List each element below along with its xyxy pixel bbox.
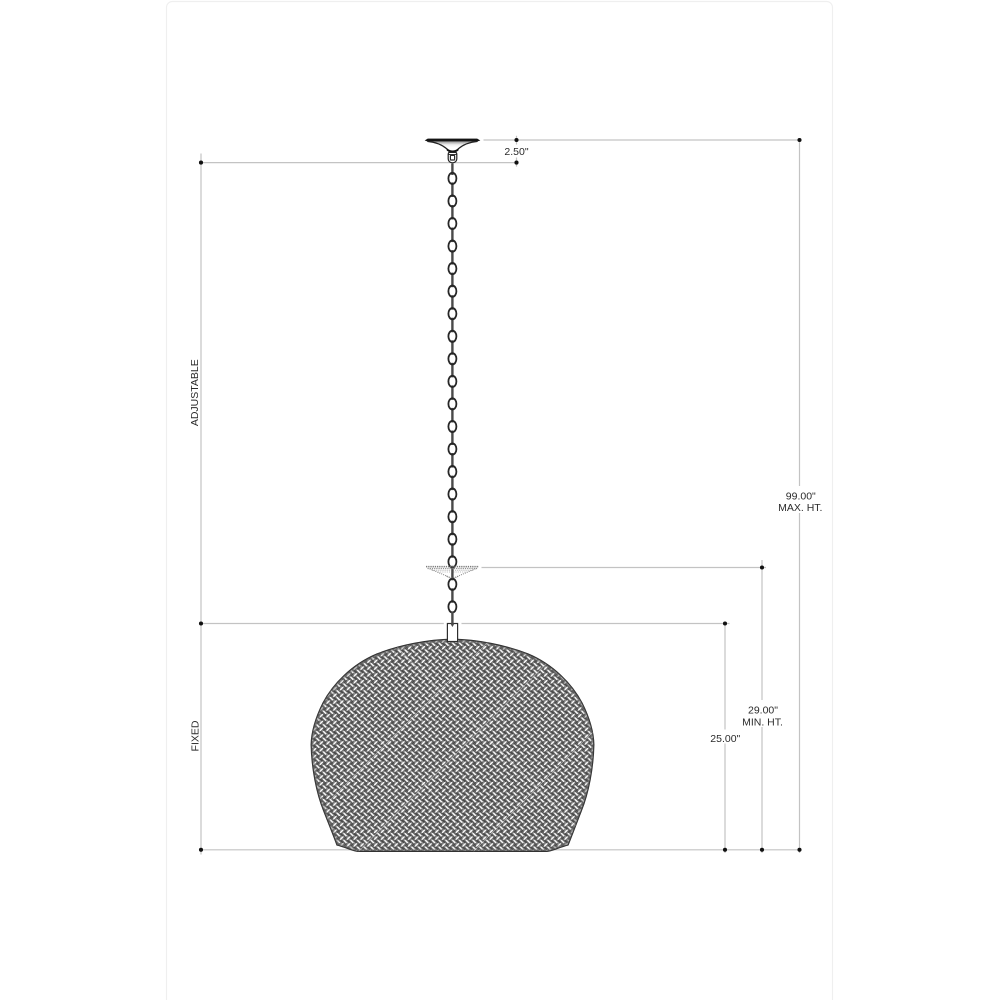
svg-text:MIN. HT.: MIN. HT. [742, 716, 783, 728]
svg-text:ADJUSTABLE: ADJUSTABLE [189, 359, 201, 426]
svg-text:99.00": 99.00" [786, 490, 816, 502]
svg-text:MAX. HT.: MAX. HT. [778, 502, 822, 514]
svg-text:25.00": 25.00" [710, 733, 740, 745]
svg-text:FIXED: FIXED [189, 720, 201, 751]
svg-text:2.50": 2.50" [504, 146, 528, 158]
svg-text:29.00": 29.00" [748, 704, 778, 716]
